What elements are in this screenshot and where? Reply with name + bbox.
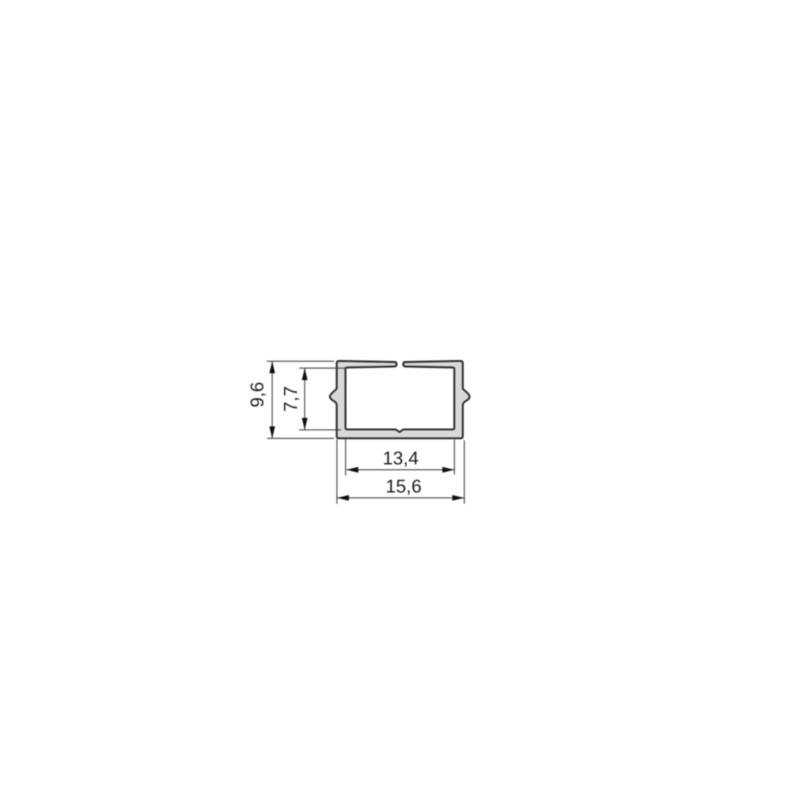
- svg-text:9,6: 9,6: [247, 382, 268, 408]
- svg-text:13,4: 13,4: [383, 447, 419, 468]
- svg-text:7,7: 7,7: [280, 386, 301, 412]
- svg-text:15,6: 15,6: [386, 475, 422, 496]
